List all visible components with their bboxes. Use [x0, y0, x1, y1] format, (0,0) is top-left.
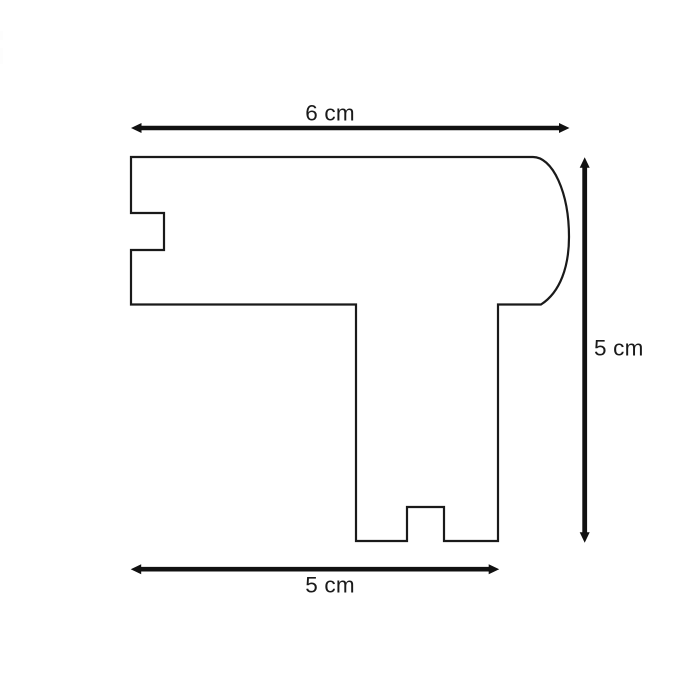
svg-text:5 cm: 5 cm [594, 336, 644, 361]
svg-text:5 cm: 5 cm [305, 573, 355, 598]
svg-text:6 cm: 6 cm [305, 101, 355, 126]
